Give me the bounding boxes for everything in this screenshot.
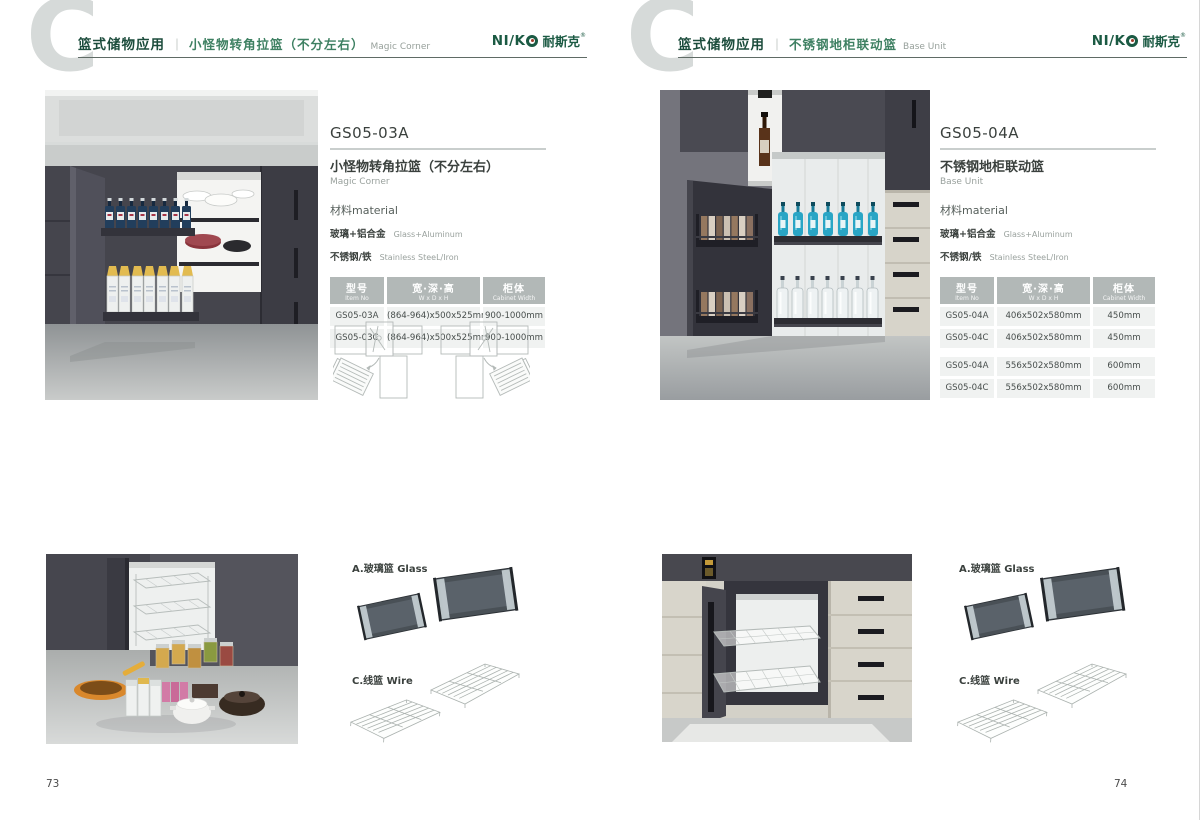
lifestyle-photo-base-unit	[662, 554, 912, 742]
lifestyle-photo-corner-baskets	[46, 554, 298, 744]
spec-row: GS05-04A 406x502x580mm 450mm	[940, 307, 1156, 326]
model-code: GS05-03A	[330, 124, 546, 142]
spec-header-cell: 型号 Item No	[330, 277, 384, 304]
logo-cn-text: 耐斯克	[1142, 31, 1180, 50]
product-photo-base-unit	[660, 90, 930, 400]
material-item: 玻璃+铝合金 Glass+Aluminum	[940, 222, 1156, 241]
product-name-cn: 小怪物转角拉篮（不分左右）	[330, 156, 546, 175]
header-title-en: Base Unit	[903, 42, 946, 52]
header-title-en: Magic Corner	[371, 42, 431, 52]
glass-basket-image	[345, 562, 530, 654]
product-photo-magic-corner	[45, 90, 318, 400]
page-number: 73	[46, 778, 59, 790]
product-name-en: Base Unit	[940, 177, 1156, 187]
page-73: C 篮式储物应用 ｜ 小怪物转角拉篮（不分左右） Magic Corner NI…	[0, 0, 600, 820]
header-rule	[78, 57, 587, 58]
product-info: GS05-03A 小怪物转角拉篮（不分左右） Magic Corner 材料ma…	[330, 124, 546, 348]
product-name-en: Magic Corner	[330, 177, 546, 187]
corner-diagram-right-icon	[438, 318, 530, 402]
page-header: 篮式储物应用 ｜ 不锈钢地柜联动篮 Base Unit	[678, 33, 946, 53]
brand-logo: NI/K 耐斯克 ®	[1088, 31, 1186, 50]
logo-text: NI/K	[1092, 33, 1126, 49]
glass-basket-image	[952, 562, 1137, 654]
material-item: 玻璃+铝合金 Glass+Aluminum	[330, 222, 546, 241]
spec-row: GS05-04A 556x502x580mm 600mm	[940, 357, 1156, 376]
page-number: 74	[1114, 778, 1127, 790]
corner-diagram-left-icon	[333, 318, 425, 402]
accessory-glass-label: A.玻璃篮 Glass	[352, 560, 428, 575]
header-divider: ｜	[771, 36, 783, 53]
registered-mark-icon: ®	[580, 32, 586, 39]
accessory-wire-label: C.线篮 Wire	[352, 672, 413, 687]
model-rule	[940, 148, 1156, 150]
accessory-column: A.玻璃篮 Glass C.线篮 Wire	[952, 552, 1137, 764]
spec-header-cell: 型号 Item No	[940, 277, 994, 304]
material-label: 材料material	[940, 202, 1156, 218]
header-category: 篮式储物应用	[678, 33, 765, 53]
accessory-glass-label: A.玻璃篮 Glass	[959, 560, 1035, 575]
material-label: 材料material	[330, 202, 546, 218]
brand-logo: NI/K 耐斯克 ®	[488, 31, 586, 50]
header-divider: ｜	[171, 36, 183, 53]
product-info: GS05-04A 不锈钢地柜联动篮 Base Unit 材料material 玻…	[940, 124, 1156, 398]
logo-o-icon	[526, 35, 538, 47]
material-item: 不锈钢/铁 Stainless SteeL/Iron	[940, 245, 1156, 264]
page-74: C 篮式储物应用 ｜ 不锈钢地柜联动篮 Base Unit NI/K 耐斯克 ®	[600, 0, 1200, 820]
header-title-cn: 不锈钢地柜联动篮	[789, 34, 897, 53]
header-rule	[678, 57, 1187, 58]
model-code: GS05-04A	[940, 124, 1156, 142]
registered-mark-icon: ®	[1180, 32, 1186, 39]
header-title-cn: 小怪物转角拉篮（不分左右）	[189, 34, 365, 53]
logo-o-icon	[1126, 35, 1138, 47]
installation-diagrams	[333, 318, 530, 402]
logo-text: NI/K	[492, 33, 526, 49]
accessory-wire-label: C.线篮 Wire	[959, 672, 1020, 687]
spec-table: 型号 Item No 宽·深·高 W x D x H 柜体 Cabinet Wi…	[940, 277, 1156, 398]
logo-cn-text: 耐斯克	[542, 31, 580, 50]
spec-header-cell: 宽·深·高 W x D x H	[387, 277, 480, 304]
spec-row: GS05-04C 556x502x580mm 600mm	[940, 379, 1156, 398]
model-rule	[330, 148, 546, 150]
accessory-column: A.玻璃篮 Glass C.线篮 Wire	[345, 552, 530, 764]
spec-header-cell: 柜体 Cabinet Width	[483, 277, 545, 304]
material-item: 不锈钢/铁 Stainless SteeL/Iron	[330, 245, 546, 264]
page-header: 篮式储物应用 ｜ 小怪物转角拉篮（不分左右） Magic Corner	[78, 33, 430, 53]
product-name-cn: 不锈钢地柜联动篮	[940, 156, 1156, 175]
spec-header-cell: 柜体 Cabinet Width	[1093, 277, 1155, 304]
header-category: 篮式储物应用	[78, 33, 165, 53]
spec-row: GS05-04C 406x502x580mm 450mm	[940, 329, 1156, 348]
catalog-spread: C 篮式储物应用 ｜ 小怪物转角拉篮（不分左右） Magic Corner NI…	[0, 0, 1200, 820]
spec-header-cell: 宽·深·高 W x D x H	[997, 277, 1090, 304]
